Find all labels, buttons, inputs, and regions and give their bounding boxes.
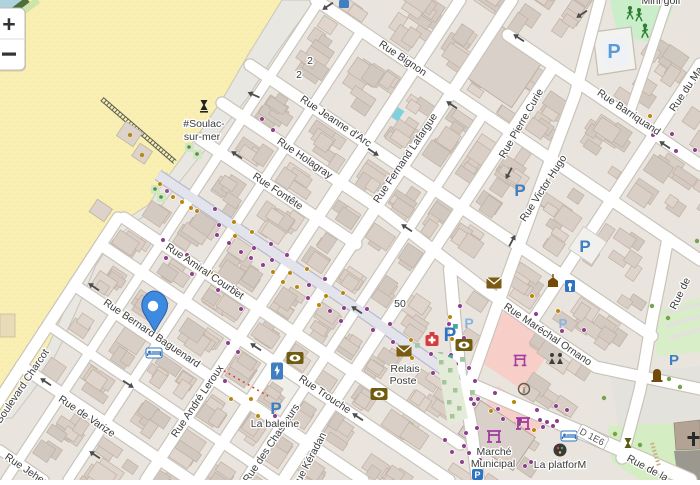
svg-text:La platforM: La platforM — [534, 459, 587, 471]
svg-text:Mini golf: Mini golf — [641, 0, 680, 7]
svg-text:Municipal: Municipal — [471, 458, 515, 470]
svg-text:P: P — [474, 470, 480, 480]
svg-text:P: P — [444, 325, 457, 346]
svg-text:P: P — [607, 41, 620, 63]
svg-text:2: 2 — [307, 55, 313, 67]
svg-text:sur-mer: sur-mer — [184, 131, 221, 143]
svg-text:Relais: Relais — [390, 363, 419, 375]
svg-text:P: P — [559, 316, 568, 331]
svg-text:P: P — [270, 399, 281, 418]
svg-text:2: 2 — [296, 69, 302, 81]
svg-text:50: 50 — [394, 298, 406, 310]
svg-text:P: P — [514, 181, 525, 200]
svg-text:P: P — [669, 352, 679, 369]
svg-text:P: P — [464, 315, 473, 331]
svg-text:+: + — [2, 11, 15, 37]
svg-text:i: i — [523, 386, 525, 395]
svg-text:#Soulac-: #Soulac- — [183, 118, 225, 130]
svg-text:P: P — [579, 237, 590, 256]
svg-text:La baleine: La baleine — [251, 418, 300, 430]
svg-text:Marché: Marché — [476, 446, 511, 458]
svg-text:Poste: Poste — [390, 375, 417, 387]
